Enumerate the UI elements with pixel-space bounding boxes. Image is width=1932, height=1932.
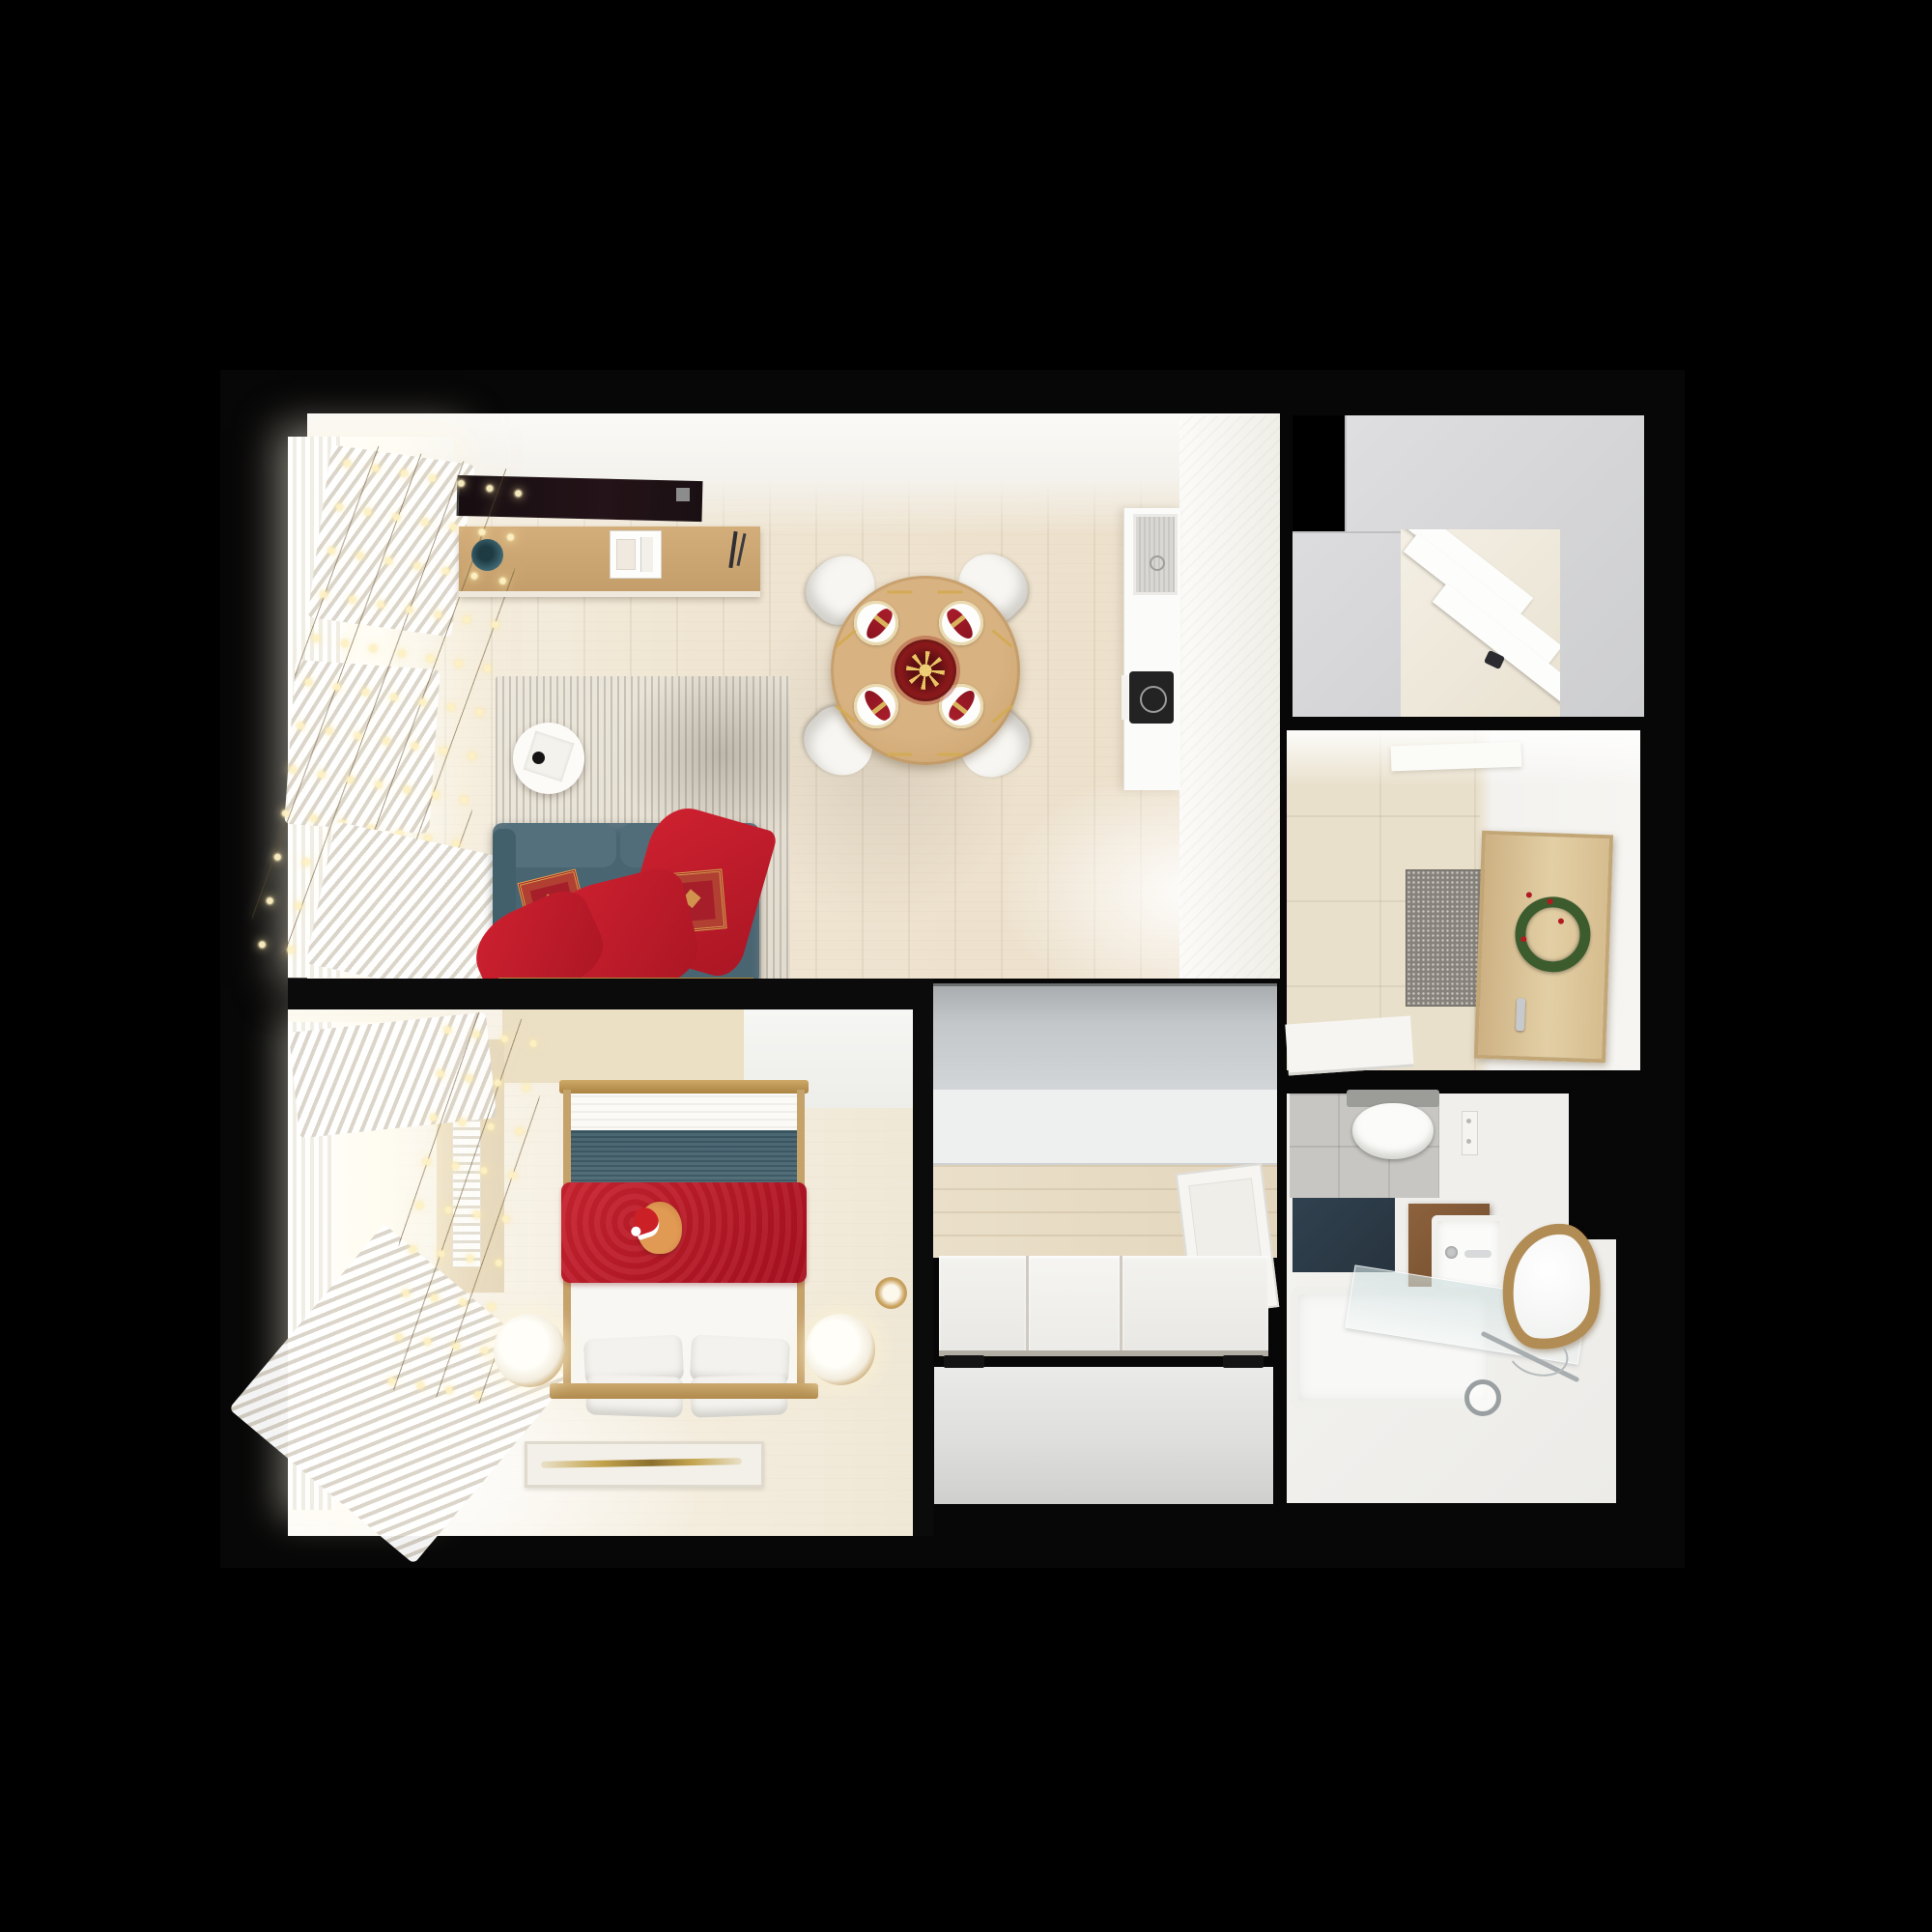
wardrobe-handle <box>1223 1355 1264 1368</box>
coffee-table <box>513 723 584 794</box>
tray <box>524 731 575 782</box>
kitchen-counter <box>1123 508 1180 790</box>
gold-cutlery <box>938 591 963 594</box>
bed-frame-foot <box>550 1383 818 1399</box>
ceiling-beam <box>1391 742 1522 772</box>
gold-cutlery <box>888 591 913 594</box>
bed <box>563 1080 805 1399</box>
cabinet-seam <box>1345 415 1347 533</box>
kitchen-wall <box>1179 415 1280 979</box>
wall-bedroom-hall <box>913 1009 933 1536</box>
wall-living-bedroom <box>288 979 933 1009</box>
hall-white-cabinet <box>933 1090 1277 1165</box>
gold-cutlery <box>888 753 913 756</box>
gold-star <box>906 651 945 690</box>
sofa-back-cushion <box>500 823 616 867</box>
shelf <box>1404 533 1560 665</box>
red-blanket <box>561 1182 807 1283</box>
wardrobe-front <box>934 1367 1273 1504</box>
open-door-leaf <box>1285 1016 1413 1076</box>
gold-cutlery <box>938 753 963 756</box>
candle <box>875 1277 907 1309</box>
door-handle <box>1516 998 1525 1031</box>
teal-blanket <box>571 1130 797 1184</box>
media-console-edge <box>459 591 760 597</box>
wardrobe-sliding-doors <box>939 1256 1268 1350</box>
kitchen-sink <box>1133 514 1178 595</box>
floor-plan-render <box>0 0 1932 1932</box>
wardrobe-panel <box>1122 1256 1268 1350</box>
closet-wall-notch <box>1293 415 1345 531</box>
mattress-fold <box>571 1094 797 1134</box>
wardrobe-panel <box>939 1256 1026 1350</box>
christmas-centerpiece <box>895 639 956 701</box>
bedside-lamp <box>806 1314 875 1385</box>
teal-vase <box>471 539 503 571</box>
cup <box>532 752 545 764</box>
wardrobe-handle <box>944 1355 984 1368</box>
wardrobe-panel <box>1029 1256 1120 1350</box>
bath-mat <box>1293 1198 1395 1272</box>
shower-head <box>1464 1379 1501 1416</box>
cabinet-seam <box>1293 531 1403 533</box>
closet-open-shelving <box>1401 529 1560 717</box>
christmas-wreath <box>1514 895 1592 974</box>
toilet <box>1352 1103 1434 1159</box>
hall-gray-cabinet <box>933 983 1277 1093</box>
bedroom-rug <box>525 1441 764 1488</box>
induction-hob <box>1129 671 1174 724</box>
headboard <box>559 1080 809 1094</box>
sofa <box>493 823 759 985</box>
front-door <box>1474 831 1613 1064</box>
wreath-berry <box>1526 892 1532 897</box>
cat-in-santa-hat <box>638 1202 682 1254</box>
storage-box <box>610 530 662 579</box>
tv-mount <box>676 488 690 501</box>
wardrobe-rail <box>939 1350 1268 1356</box>
bedside-lamp <box>494 1314 565 1387</box>
wall-outlet <box>1462 1111 1478 1155</box>
